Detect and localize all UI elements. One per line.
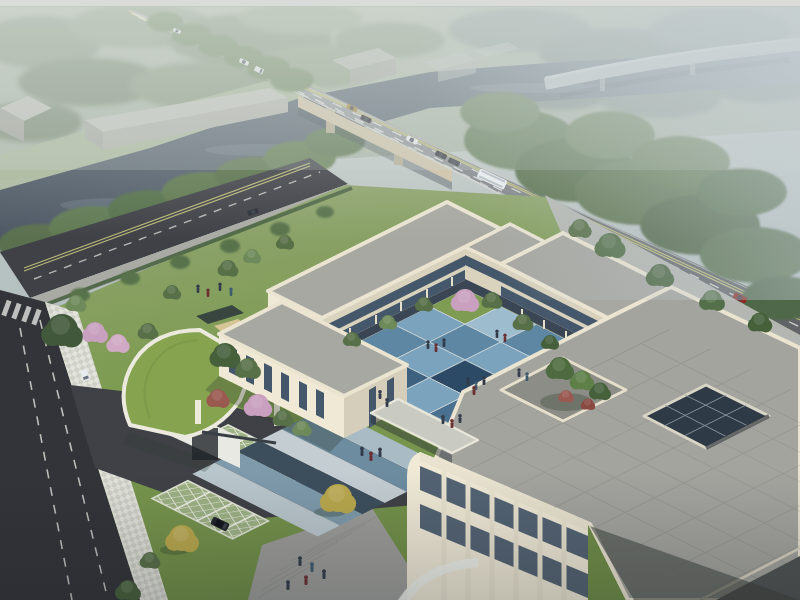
bottom-vignette — [0, 470, 800, 600]
aerial-rendering — [0, 0, 800, 600]
frame-top-edge — [0, 0, 800, 6]
haze-band — [0, 0, 800, 170]
gate-pillar — [195, 400, 201, 424]
rendering-canvas — [0, 0, 800, 600]
